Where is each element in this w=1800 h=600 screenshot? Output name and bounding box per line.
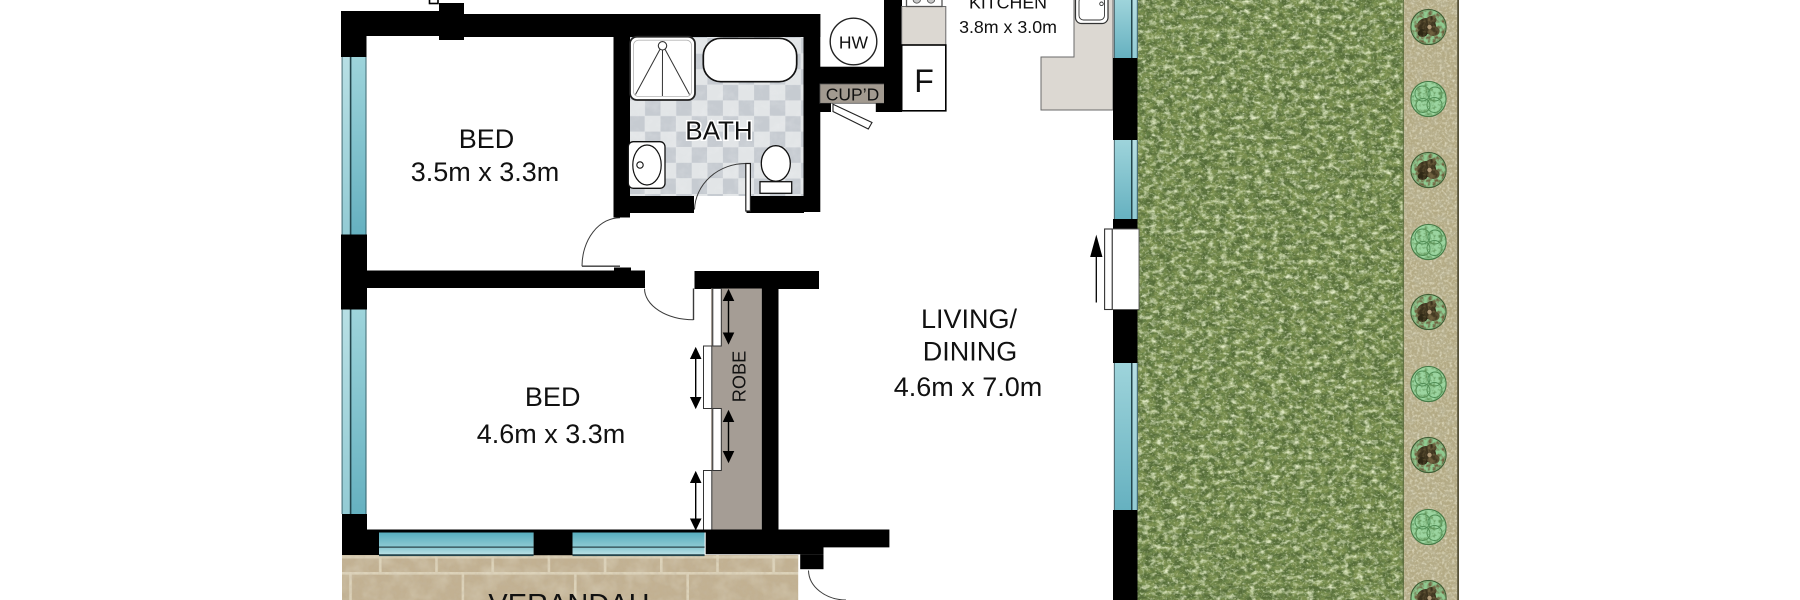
svg-text:CUP’D: CUP’D — [826, 85, 879, 105]
svg-text:KITCHEN: KITCHEN — [969, 0, 1047, 13]
svg-text:LIVING/: LIVING/ — [921, 304, 1018, 334]
svg-text:F: F — [914, 63, 934, 99]
svg-text:HW: HW — [839, 33, 869, 53]
svg-text:BATH: BATH — [685, 116, 752, 146]
svg-text:DINING: DINING — [923, 336, 1018, 366]
svg-text:BED: BED — [525, 382, 581, 412]
svg-text:3.5m x 3.3m: 3.5m x 3.3m — [411, 157, 560, 187]
svg-text:VERANDAH: VERANDAH — [488, 589, 649, 600]
svg-text:BED: BED — [459, 124, 515, 154]
svg-text:ROBE: ROBE — [730, 351, 750, 403]
svg-text:4.6m x 3.3m: 4.6m x 3.3m — [477, 419, 626, 449]
svg-text:4.6m x 7.0m: 4.6m x 7.0m — [894, 372, 1043, 402]
svg-text:3.8m x 3.0m: 3.8m x 3.0m — [959, 17, 1057, 37]
